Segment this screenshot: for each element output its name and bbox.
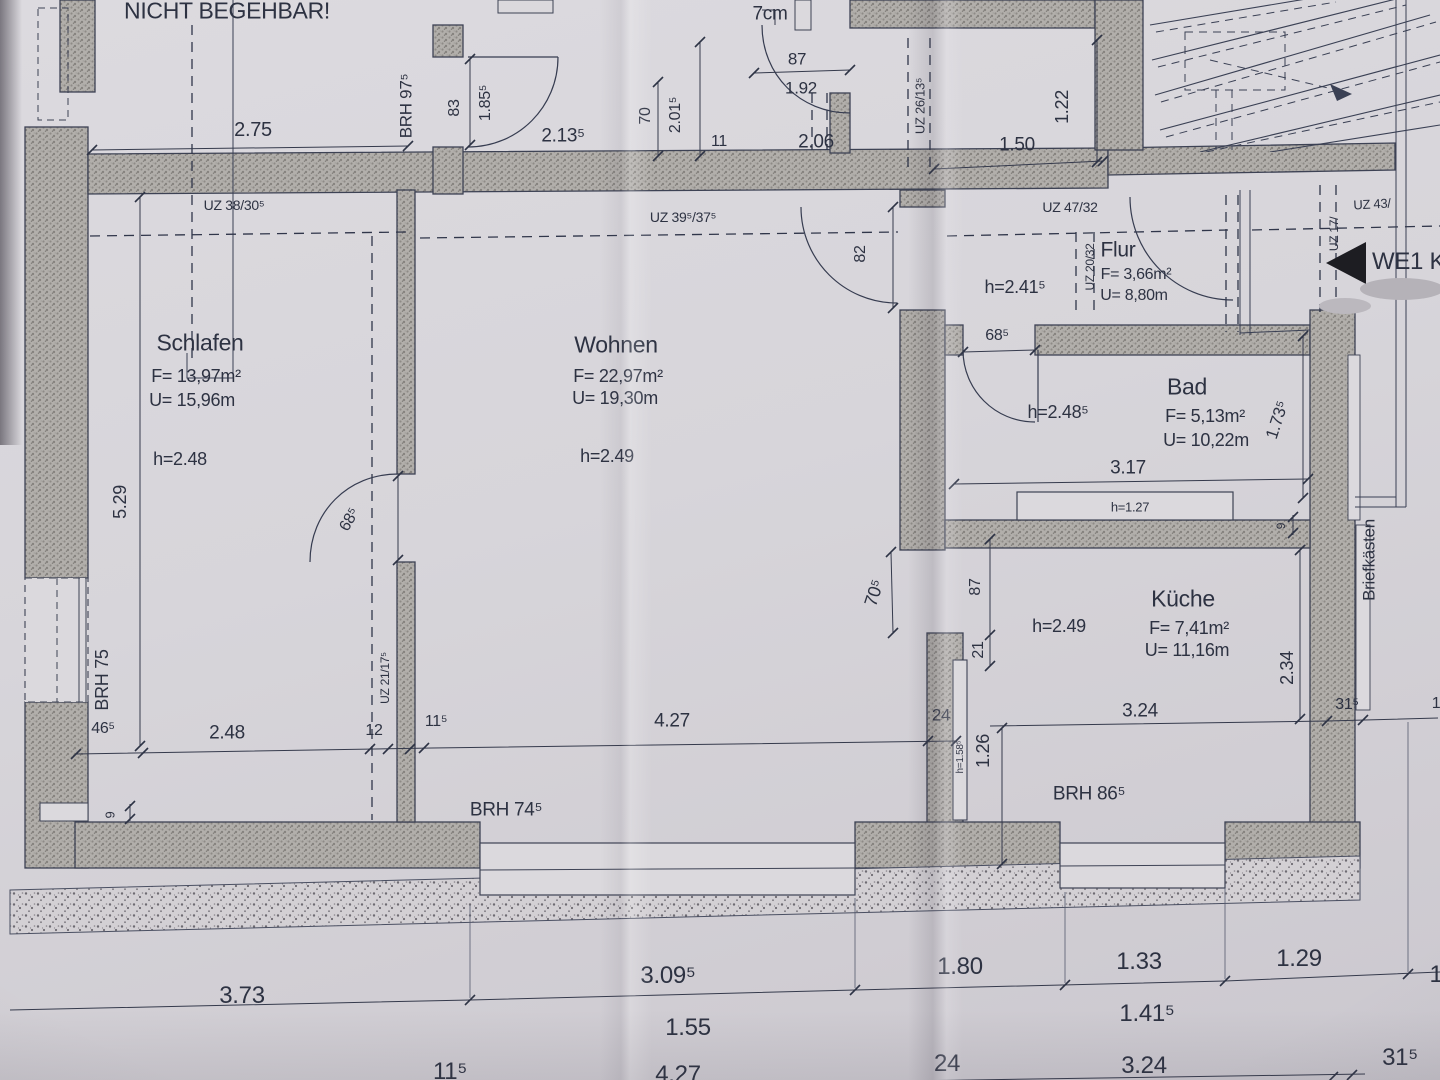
kueche-perimeter: U= 11,16m [1145, 641, 1230, 659]
beam-uz-47-32: UZ 47/32 [1042, 200, 1097, 214]
dim-5-29: 5.29 [111, 485, 129, 519]
flur-perimeter: U= 8,80m [1100, 288, 1167, 304]
briefkaesten-label: Briefkästen [1361, 519, 1378, 601]
kueche-area: F= 7,41m² [1149, 619, 1229, 637]
dim-2-34: 2.34 [1278, 651, 1296, 685]
dim-68-5-flur: 68⁵ [985, 328, 1009, 344]
floorplan-drawing [0, 0, 1440, 1080]
beam-uz-20-32: UZ 20/32 [1084, 244, 1096, 291]
dim-3-73: 3.73 [219, 984, 265, 1008]
nicht-begehbar-label: NICHT BEGEHBAR! [124, 0, 330, 23]
dim-83-top: 83 [447, 99, 463, 116]
scan-smudge [1319, 298, 1371, 314]
flur-height: h=2.41⁵ [985, 278, 1046, 296]
dim-87-top: 87 [788, 51, 806, 68]
schlafen-perimeter: U= 15,96m [149, 391, 235, 409]
dim-brh-86-5: BRH 86⁵ [1053, 785, 1125, 804]
door-arc-bad [963, 350, 1035, 422]
beam-uz-17: UZ 17/ [1328, 217, 1340, 251]
schlafen-height: h=2.48 [153, 450, 207, 468]
bad-perimeter: U= 10,22m [1163, 431, 1249, 449]
dim-46-5: 46⁵ [91, 721, 115, 737]
door-arc-wohnen-flur [801, 207, 897, 303]
flur-name: Flur [1101, 240, 1136, 261]
dim-9-bad: 9 [1275, 523, 1287, 529]
dim-b-3-24: 3.24 [1121, 1054, 1167, 1078]
dim-31-5: 31⁵ [1335, 697, 1359, 713]
dim-2-48: 2.48 [209, 724, 245, 743]
dim-21: 21 [971, 641, 987, 658]
dim-1-80: 1.80 [937, 955, 983, 979]
dim-3-24: 3.24 [1122, 702, 1158, 721]
bad-height: h=2.48⁵ [1028, 403, 1089, 421]
dim-brh-75: BRH 75 [93, 649, 111, 710]
beam-uz-39-5-37-5: UZ 39⁵/37⁵ [650, 210, 716, 224]
dim-2-06: 2.06 [798, 133, 834, 152]
dim-b-24: 24 [934, 1052, 960, 1076]
h-1-27-label: h=1.27 [1111, 501, 1149, 514]
dim-11-5: 11⁵ [425, 714, 447, 730]
dim-2-75: 2.75 [234, 120, 272, 140]
dim-1-50: 1.50 [999, 136, 1035, 155]
door-arc-flur-entry [1130, 197, 1233, 300]
dim-4-27: 4.27 [654, 712, 690, 731]
dim-1-partial-upper: 1 [1432, 696, 1440, 712]
stufenhoehe-value: 7cm [753, 5, 788, 24]
wohnen-name: Wohnen [574, 334, 657, 357]
h-1-58-5-label: h=1.58⁵ [956, 741, 966, 774]
schlafen-area: F= 13,97m² [151, 367, 241, 385]
dim-1-22: 1.22 [1053, 90, 1071, 124]
dim-1-partial-bottom: 1 [1429, 963, 1440, 987]
dim-3-17: 3.17 [1110, 459, 1146, 478]
kueche-height: h=2.49 [1032, 617, 1086, 635]
dim-24: 24 [932, 707, 950, 724]
dim-1-33: 1.33 [1116, 950, 1162, 974]
dim-1-85-5: 1.85⁵ [478, 85, 494, 121]
dim-1-92: 1.92 [785, 80, 817, 97]
dim-brh-74-5: BRH 74⁵ [470, 801, 542, 820]
dim-b-11-5: 11⁵ [433, 1060, 467, 1080]
kueche-name: Küche [1151, 588, 1215, 611]
flur-area: F= 3,66m² [1101, 267, 1172, 283]
dim-b-31-5: 31⁵ [1382, 1046, 1418, 1070]
dim-1-55: 1.55 [665, 1016, 711, 1040]
dim-82: 82 [853, 245, 869, 262]
beam-uz-38-30-5: UZ 38/30⁵ [204, 198, 265, 212]
beam-uz-26-13-5: UZ 26/13⁵ [914, 78, 927, 134]
bad-name: Bad [1167, 376, 1207, 399]
dim-1-29: 1.29 [1276, 947, 1322, 971]
wohnen-area: F= 22,97m² [573, 367, 663, 385]
bad-area: F= 5,13m² [1165, 407, 1245, 425]
dim-12: 12 [365, 723, 382, 739]
schlafen-name: Schlafen [156, 332, 243, 355]
dim-2-01-5: 2.01⁵ [668, 97, 684, 133]
dim-b-4-27: 4.27 [655, 1063, 701, 1080]
dim-1-26: 1.26 [974, 734, 992, 768]
beam-uz-21-17-5: UZ 21/17⁵ [379, 652, 391, 704]
dim-brh-97-5: BRH 97⁵ [398, 74, 415, 138]
scan-smudge [1360, 278, 1440, 300]
dim-9-left: 9 [104, 812, 117, 819]
beam-uz-43: UZ 43/ [1353, 197, 1391, 212]
dim-70-top: 70 [638, 107, 654, 124]
wohnen-perimeter: U= 19,30m [572, 389, 658, 407]
dim-1-41-5: 1.41⁵ [1119, 1002, 1174, 1026]
dim-3-09-5: 3.09⁵ [640, 964, 695, 988]
we1-label: WE1 Kus [1372, 250, 1440, 274]
floor-plan-page: NICHT BEGEHBAR! Stufenhöhe 7cm 2.75 BRH … [0, 0, 1440, 1080]
stufenhoehe-label: Stufenhöhe [745, 0, 839, 3]
dim-87-kueche: 87 [968, 578, 984, 595]
dim-11-top: 11 [711, 134, 727, 150]
dim-2-13-5: 2.13⁵ [541, 127, 584, 146]
wohnen-height: h=2.49 [580, 447, 634, 465]
